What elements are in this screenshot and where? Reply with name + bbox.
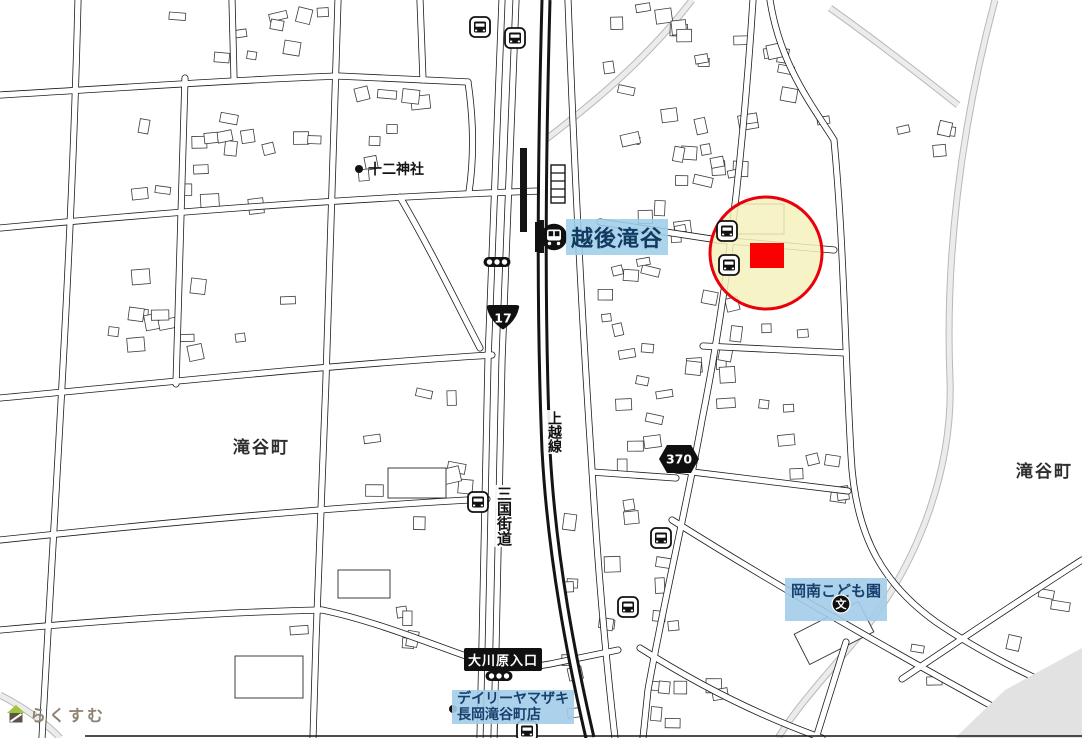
building-layer xyxy=(108,3,1070,728)
rail-siding xyxy=(520,148,527,232)
traffic-signal-icon xyxy=(486,671,513,681)
station-platform xyxy=(551,165,565,203)
school-icon-char: 文 xyxy=(836,597,848,611)
poi-dot xyxy=(355,165,363,173)
road-name-label: 三国街道 xyxy=(494,485,515,547)
town-name-left: 滝谷町 xyxy=(233,433,290,458)
map-linework: 17370 xyxy=(0,0,1082,738)
station-name-label[interactable]: 越後滝谷 xyxy=(566,219,668,255)
bus-intersection-label: 大川原入口 xyxy=(464,648,542,671)
house-icon xyxy=(6,704,26,724)
bus-stop-icon xyxy=(719,255,739,275)
town-name-right: 滝谷町 xyxy=(1016,457,1073,482)
railway-name-label: 上越線 xyxy=(544,410,564,454)
bus-stop-icon xyxy=(505,28,525,48)
shrine-label: 十二神社 xyxy=(368,159,424,179)
bus-stop-icon xyxy=(470,17,490,37)
store-name-line2: 長岡滝谷町店 xyxy=(457,707,569,723)
traffic-signal-icon xyxy=(484,257,511,267)
bus-stop-icon xyxy=(651,528,671,548)
svg-text:17: 17 xyxy=(494,311,511,326)
map-canvas[interactable]: 17370 越後滝谷 十二神社 滝谷町 滝谷町 上越線 三国街道 大川原入口 デ… xyxy=(0,0,1082,738)
watermark: らくすむ xyxy=(6,702,106,726)
convenience-store-label[interactable]: デイリーヤマザキ 長岡滝谷町店 xyxy=(452,690,574,724)
bus-stop-icon xyxy=(468,492,488,512)
train-station-icon xyxy=(535,221,567,257)
svg-text:370: 370 xyxy=(666,452,692,467)
bus-stop-icon xyxy=(618,597,638,617)
store-name-line1: デイリーヤマザキ xyxy=(457,691,569,707)
school-icon: 文 xyxy=(831,594,851,618)
highlight-property-rect[interactable] xyxy=(750,243,784,268)
bus-stop-icon xyxy=(717,221,737,241)
route-shield-370: 370 xyxy=(659,445,699,473)
watermark-text: らくすむ xyxy=(30,702,106,726)
